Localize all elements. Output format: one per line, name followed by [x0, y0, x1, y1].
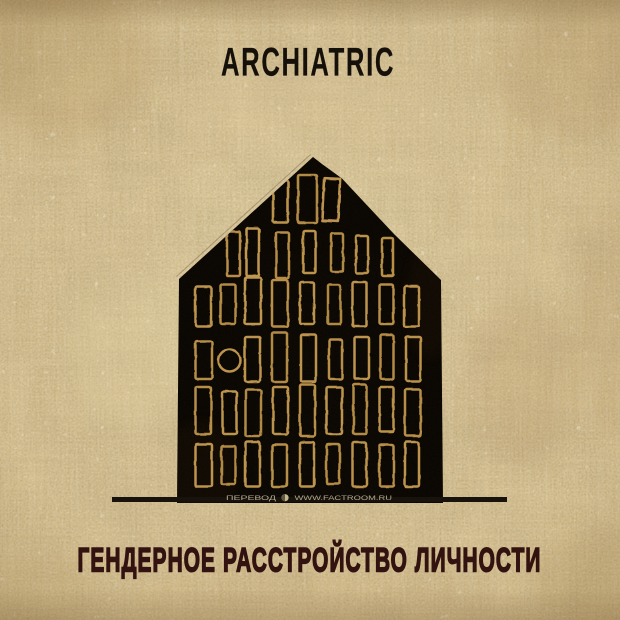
- svg-text:ARCHIATRIC: ARCHIATRIC: [221, 41, 395, 85]
- svg-text:ПЕРЕВОД: ПЕРЕВОД: [226, 495, 277, 502]
- svg-text:ГЕНДЕРНОЕ РАССТРОЙСТВО ЛИЧНОСТ: ГЕНДЕРНОЕ РАССТРОЙСТВО ЛИЧНОСТИ: [78, 540, 542, 580]
- svg-text:WWW.FACTROOM.RU: WWW.FACTROOM.RU: [295, 495, 393, 502]
